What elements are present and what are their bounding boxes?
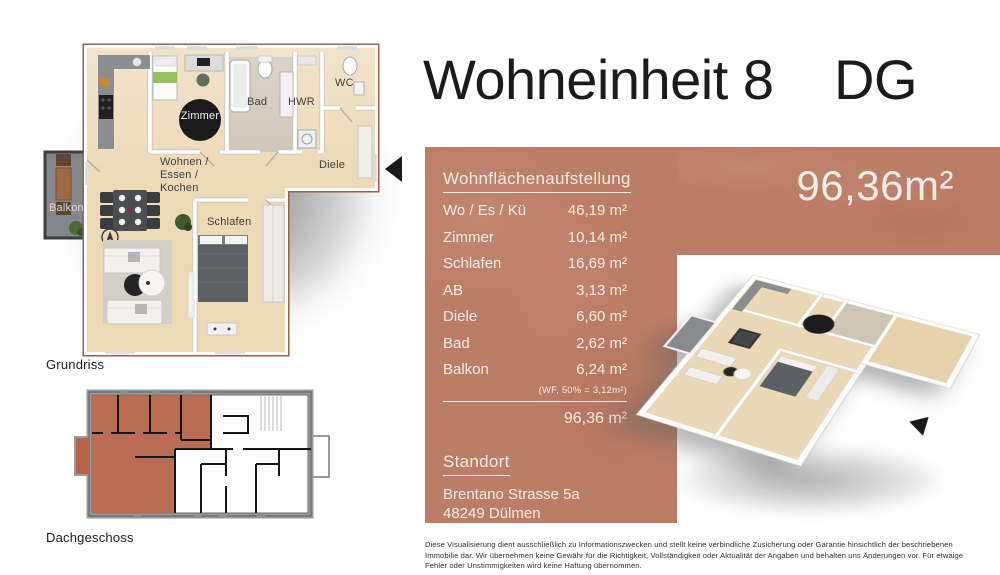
area-panel: Wohnflächenaufstellung Wo / Es / Kü46,19… — [425, 147, 677, 523]
area-table-heading: Wohnflächenaufstellung — [443, 169, 631, 193]
washer — [298, 130, 316, 148]
iso-bed — [760, 357, 817, 397]
table-row: Diele6,60 m² — [443, 308, 627, 335]
toilet — [258, 60, 272, 78]
entrance-arrow-icon — [385, 156, 402, 182]
balcony — [45, 152, 87, 238]
floor-plan-2d — [40, 42, 385, 362]
table-row: Bad2,62 m² — [443, 335, 627, 362]
kitchen-counter — [98, 55, 150, 69]
tv-board — [188, 272, 194, 318]
plan-caption-grundriss: Grundriss — [46, 357, 104, 372]
render-shadow — [675, 445, 945, 515]
table-row: AB3,13 m² — [443, 282, 627, 309]
table-row: Wo / Es / Kü46,19 m² — [443, 202, 627, 229]
iso-hall-wing — [861, 312, 980, 388]
stove — [99, 95, 113, 119]
table-row: Schlafen16,69 m² — [443, 255, 627, 282]
balcony-table — [56, 168, 71, 200]
wc-toilet — [343, 57, 357, 75]
iso-dining-table — [728, 328, 762, 349]
address-street: Brentano Strasse 5a — [443, 485, 627, 505]
entrance-marker-icon — [909, 417, 933, 438]
desk-chair — [197, 74, 210, 87]
room-label-wohnen: Wohnen / Essen / Kochen — [160, 156, 232, 195]
room-label-schlafen: Schlafen — [207, 216, 251, 229]
locator-plan — [73, 386, 335, 524]
table-row: Zimmer10,14 m² — [443, 229, 627, 256]
room-label-hwr: HWR — [288, 96, 315, 109]
sofa — [107, 300, 162, 324]
balcony-chair — [56, 154, 71, 166]
total-area-row: 96,36 m² — [443, 410, 627, 428]
total-area-large: 96,36m² — [796, 162, 954, 210]
dresser — [207, 323, 237, 335]
iso-sofa — [696, 349, 736, 367]
iso-sofa — [684, 367, 722, 384]
page-header: Wohneinheit 8 DG — [423, 50, 917, 110]
floor-plan-3d-render — [630, 235, 1000, 535]
page-title: Wohneinheit 8 — [423, 50, 774, 110]
double-bed — [198, 235, 248, 302]
disclaimer-text: Diese Visualisierung dient ausschließlic… — [425, 540, 987, 572]
coffee-table — [139, 270, 165, 296]
iso-kitchen — [732, 280, 766, 312]
room-label-wc: WC — [335, 77, 354, 90]
room-label-bad: Bad — [247, 96, 267, 109]
area-table: Wo / Es / Kü46,19 m² Zimmer10,14 m² Schl… — [443, 202, 627, 388]
floor-tag: DG — [834, 50, 917, 110]
dining-set — [100, 190, 160, 231]
sum-divider — [443, 401, 627, 402]
iso-bath-floor — [826, 303, 894, 346]
plan-caption-dachgeschoss: Dachgeschoss — [46, 530, 134, 545]
iso-rug — [798, 312, 839, 337]
standort-heading: Standort — [443, 452, 510, 476]
bath-vanity — [280, 72, 293, 117]
iso-wardrobe — [806, 366, 839, 401]
room-label-diele: Diele — [319, 159, 345, 172]
hall-cabinet — [358, 126, 372, 178]
address-city: 48249 Dülmen — [443, 504, 627, 524]
area-banner: 96,36m² — [677, 147, 1000, 255]
kitchen-sink — [133, 58, 142, 67]
balkon-note: (WF, 50% = 3,12m²) — [443, 385, 627, 396]
room-label-zimmer: Zimmer — [176, 110, 224, 123]
wc-sink — [354, 82, 364, 95]
room-label-balkon: Balkon — [49, 202, 84, 215]
